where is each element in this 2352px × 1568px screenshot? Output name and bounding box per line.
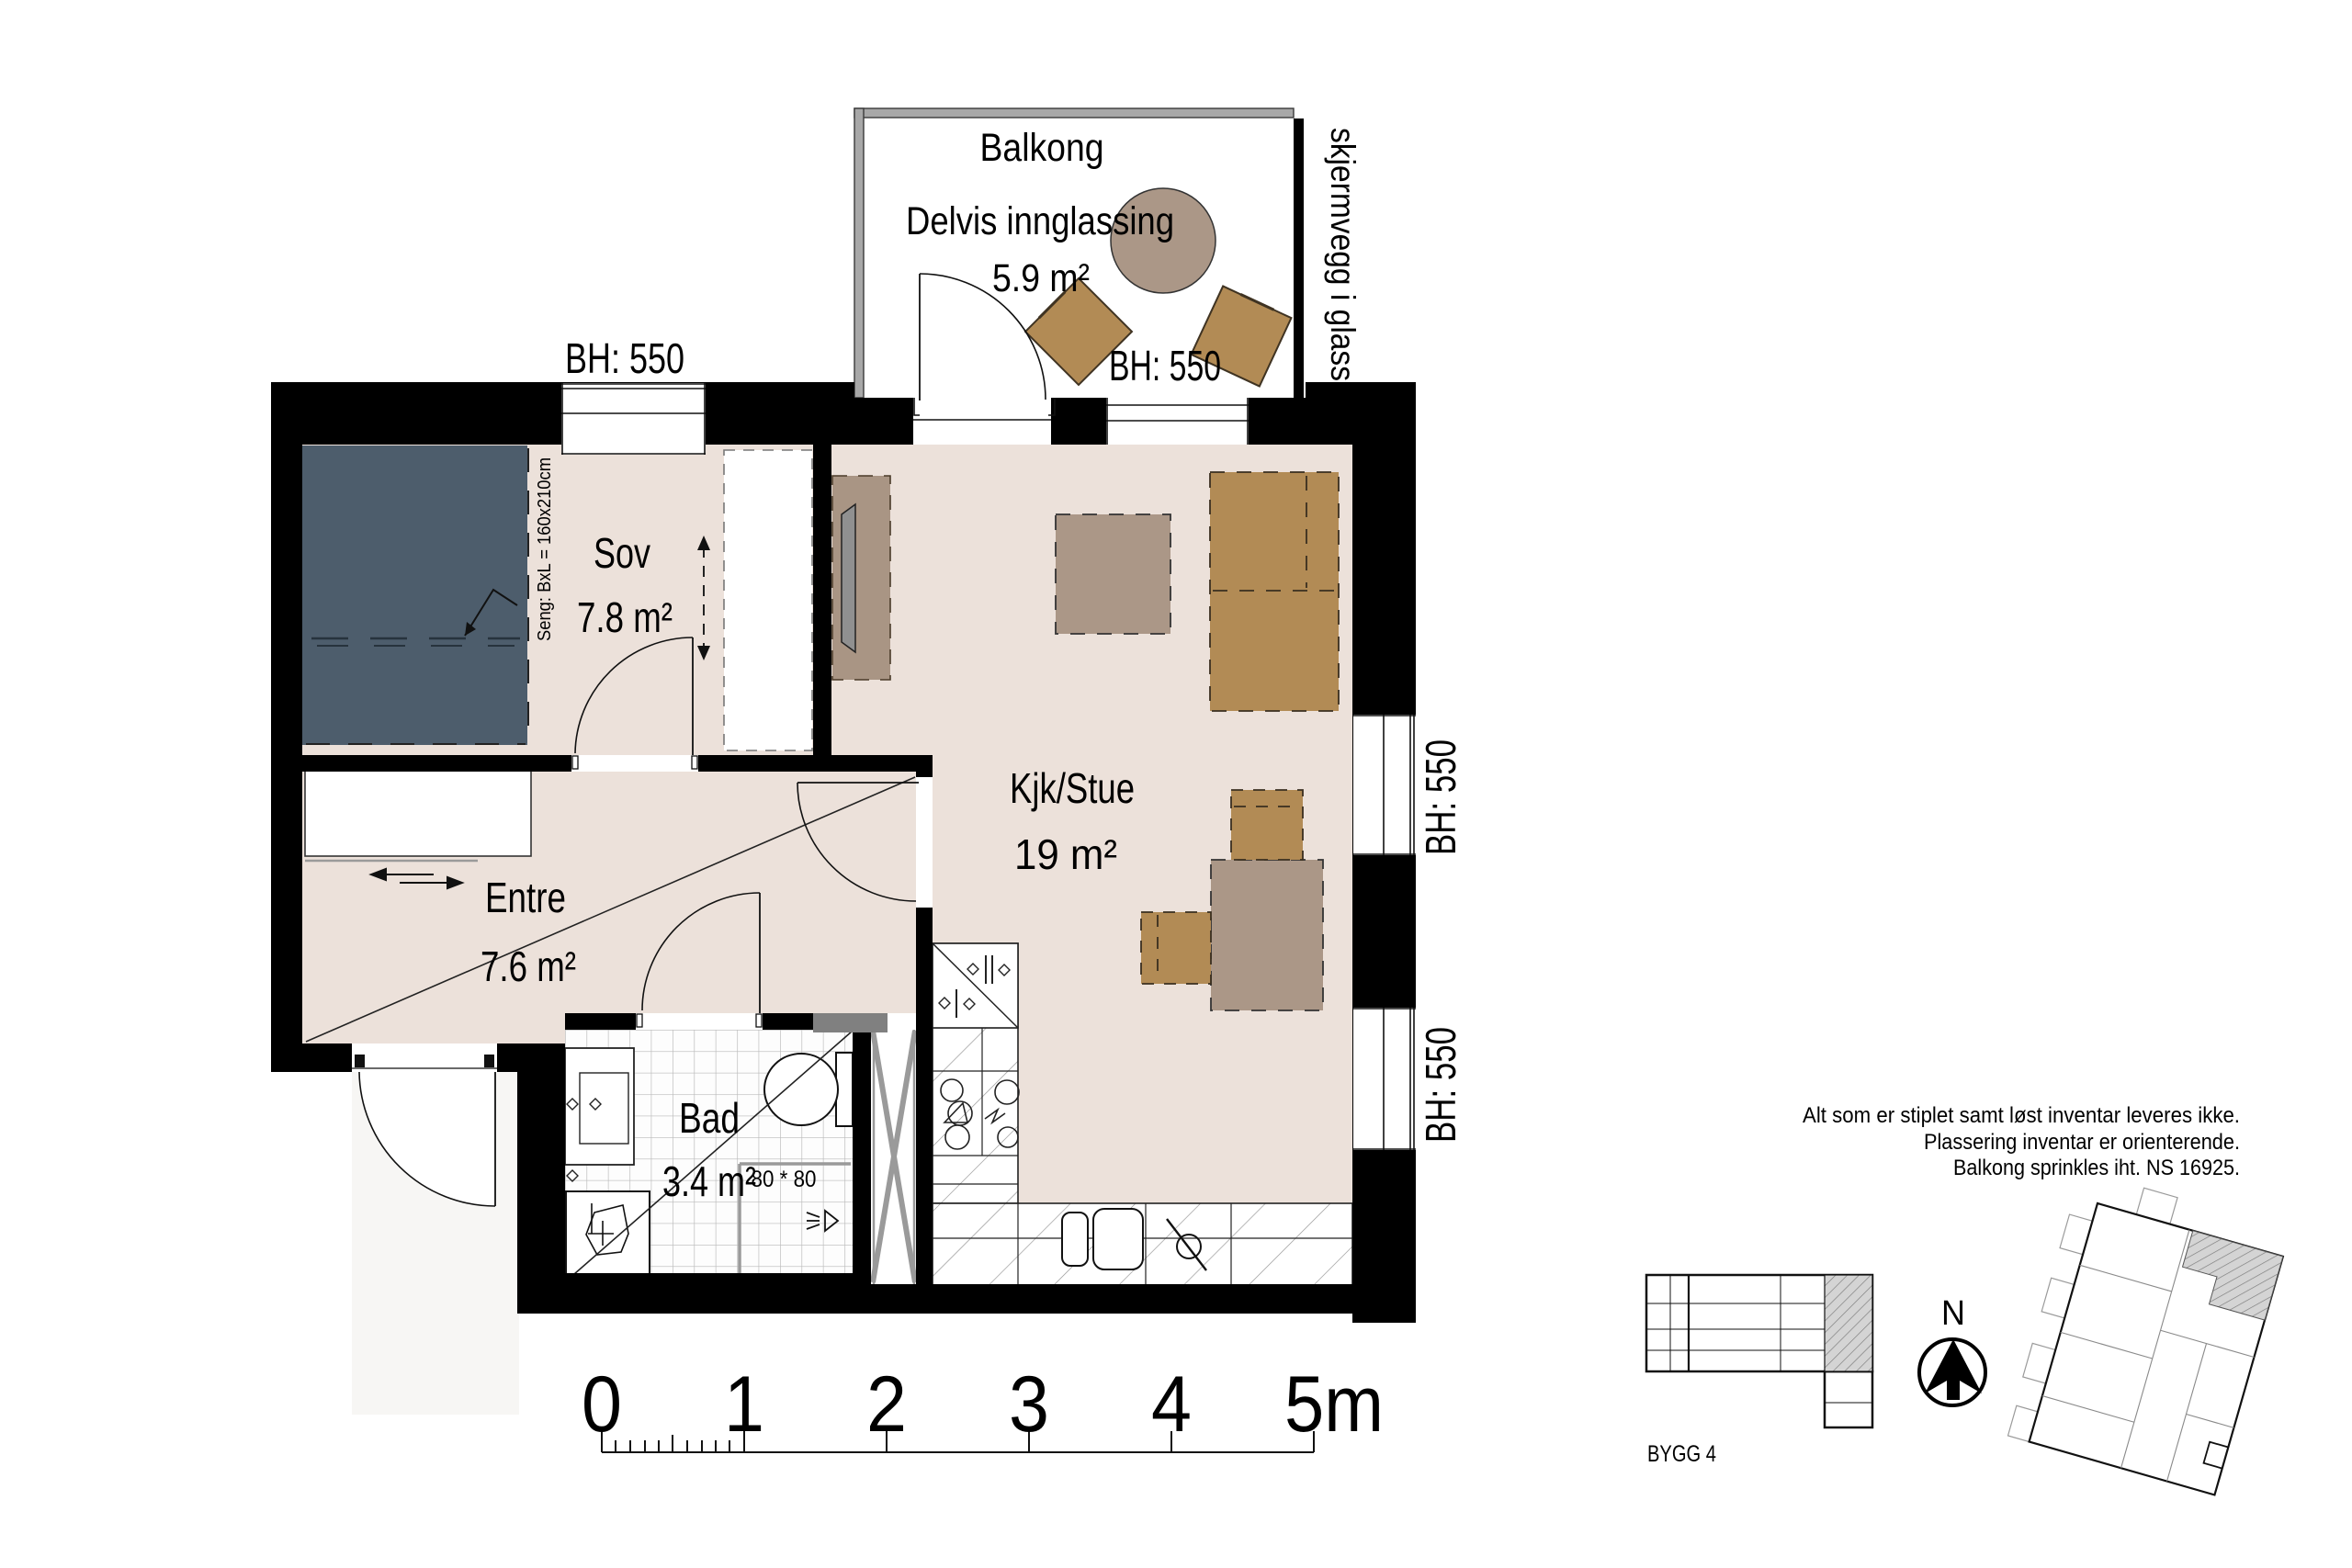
svg-text:skjermvegg i glass: skjermvegg i glass: [1324, 128, 1362, 381]
svg-text:0: 0: [582, 1360, 622, 1449]
svg-text:Alt som er stiplet samt løst i: Alt som er stiplet samt løst inventar le…: [1803, 1103, 2240, 1128]
svg-text:Kjk/Stue: Kjk/Stue: [1010, 764, 1135, 812]
svg-text:BH: 550: BH: 550: [1109, 342, 1221, 389]
svg-text:BYGG 4: BYGG 4: [1647, 1441, 1716, 1467]
svg-text:7.8 m²: 7.8 m²: [577, 593, 673, 641]
svg-text:Sov: Sov: [594, 529, 650, 577]
svg-text:80 * 80: 80 * 80: [752, 1167, 817, 1192]
svg-text:3: 3: [1009, 1360, 1049, 1449]
svg-text:Entre: Entre: [485, 874, 566, 921]
svg-text:Seng: BxL = 160x210cm: Seng: BxL = 160x210cm: [535, 457, 555, 641]
svg-text:19 m²: 19 m²: [1014, 830, 1117, 878]
svg-text:Plassering inventar er oriente: Plassering inventar er orienterende.: [1924, 1130, 2240, 1155]
svg-text:3.4 m²: 3.4 m²: [662, 1157, 756, 1205]
svg-text:BH: 550: BH: 550: [565, 334, 684, 382]
svg-text:Delvis innglassing: Delvis innglassing: [906, 199, 1174, 243]
svg-text:Bad: Bad: [679, 1094, 740, 1142]
svg-text:4: 4: [1151, 1360, 1192, 1449]
svg-text:Balkong: Balkong: [980, 126, 1104, 170]
svg-text:N: N: [1941, 1294, 1965, 1333]
svg-text:7.6 m²: 7.6 m²: [481, 942, 576, 990]
svg-text:1: 1: [724, 1360, 764, 1449]
svg-text:5.9 m²: 5.9 m²: [992, 256, 1090, 300]
svg-text:5m: 5m: [1284, 1360, 1384, 1449]
svg-text:BH: 550: BH: 550: [1417, 739, 1464, 855]
svg-text:Balkong sprinkles iht. NS 1692: Balkong sprinkles iht. NS 16925.: [1953, 1156, 2240, 1180]
svg-text:BH: 550: BH: 550: [1417, 1027, 1464, 1143]
svg-text:2: 2: [866, 1360, 907, 1449]
